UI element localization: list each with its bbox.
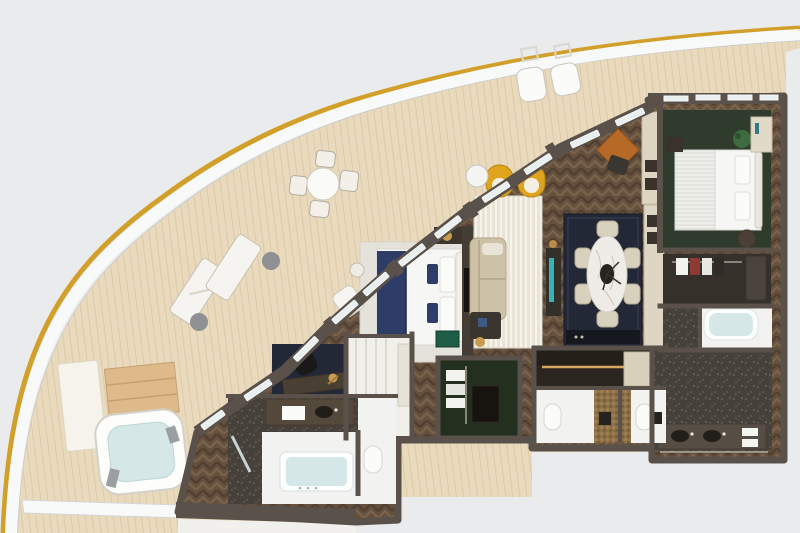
bottle (575, 336, 578, 339)
wc-room (358, 430, 396, 496)
tub-water (286, 457, 347, 486)
bed-pillow (440, 297, 455, 332)
dining-chair (597, 221, 618, 237)
hanging-clothes-white (676, 258, 688, 275)
window-pane (664, 96, 688, 101)
hanging-clothes-white (446, 384, 465, 395)
bedside-shelf (751, 117, 772, 152)
walk-in-closet (663, 254, 771, 306)
lounger-side-table (262, 252, 280, 270)
faucet (722, 432, 725, 435)
shelf-tower (746, 256, 766, 300)
accent-pillow (427, 303, 438, 323)
vessel-basin (599, 412, 611, 425)
hanging-clothes-white (446, 398, 465, 408)
hanging-clothes-red (690, 258, 700, 275)
dining-chair (597, 311, 618, 327)
hanging-clothes-white (702, 258, 712, 275)
guest-powder-rooms (534, 388, 666, 443)
towels (282, 406, 305, 420)
round-pouf (738, 230, 756, 248)
towel (742, 428, 758, 436)
coffee-table-decor (478, 318, 487, 327)
backlit-vitrine (549, 258, 554, 302)
window-pane (728, 95, 752, 100)
balcony-armchair (516, 66, 548, 103)
second-bedroom (663, 110, 772, 250)
tub-jet (299, 487, 302, 490)
bar-cabinet (624, 352, 650, 386)
faucet (690, 432, 693, 435)
bedside-pendant (350, 263, 364, 277)
dresser (472, 386, 499, 422)
kitchenette-bar (536, 350, 652, 388)
wet-room (663, 306, 772, 350)
malachite-side-table (436, 331, 459, 347)
headboard (755, 152, 762, 228)
tub-jet (307, 487, 310, 490)
hanging-clothes-white (446, 370, 465, 381)
accent-pillow (427, 264, 438, 284)
bed-pillow (735, 156, 750, 184)
tub-jet (315, 487, 318, 490)
floorplan-svg (0, 0, 800, 533)
display-console (546, 240, 561, 316)
drum-side-table (466, 165, 488, 187)
master-bathroom (226, 394, 398, 504)
towel (742, 439, 758, 447)
outdoor-chair (339, 170, 359, 192)
basin (315, 406, 333, 418)
decor-sphere (549, 240, 557, 248)
toilet (544, 404, 561, 430)
lounger-side-table (190, 313, 208, 331)
wardrobe-room (438, 358, 520, 438)
outdoor-round-table (307, 168, 339, 200)
television (464, 268, 470, 312)
hanging-clothes-dark (714, 258, 724, 275)
bed-pillow (735, 192, 750, 220)
bed-throw (675, 150, 715, 230)
bed-pillow (440, 257, 455, 292)
bedside-table (666, 137, 683, 152)
toilet (364, 446, 382, 473)
second-bathroom (652, 350, 772, 452)
bath-vanity (266, 399, 354, 425)
wardrobe-console (398, 344, 410, 406)
sofa (470, 238, 506, 320)
gold-mosaic-wall (622, 390, 631, 443)
outdoor-chair (289, 175, 308, 196)
floor-lamp (475, 337, 485, 347)
shower-floor (663, 306, 700, 350)
potted-plant (733, 130, 751, 148)
basin (671, 430, 689, 442)
leaf (735, 133, 741, 139)
floorplan-stage (0, 0, 800, 533)
dining-chair (624, 284, 640, 304)
outdoor-chair (315, 150, 336, 168)
books (755, 123, 759, 134)
basin (703, 430, 721, 442)
window-pane (760, 95, 778, 100)
outdoor-chair (309, 200, 330, 218)
tub-water (709, 313, 753, 336)
window-pane (696, 95, 720, 100)
faucet (334, 408, 337, 411)
bottle (581, 336, 584, 339)
